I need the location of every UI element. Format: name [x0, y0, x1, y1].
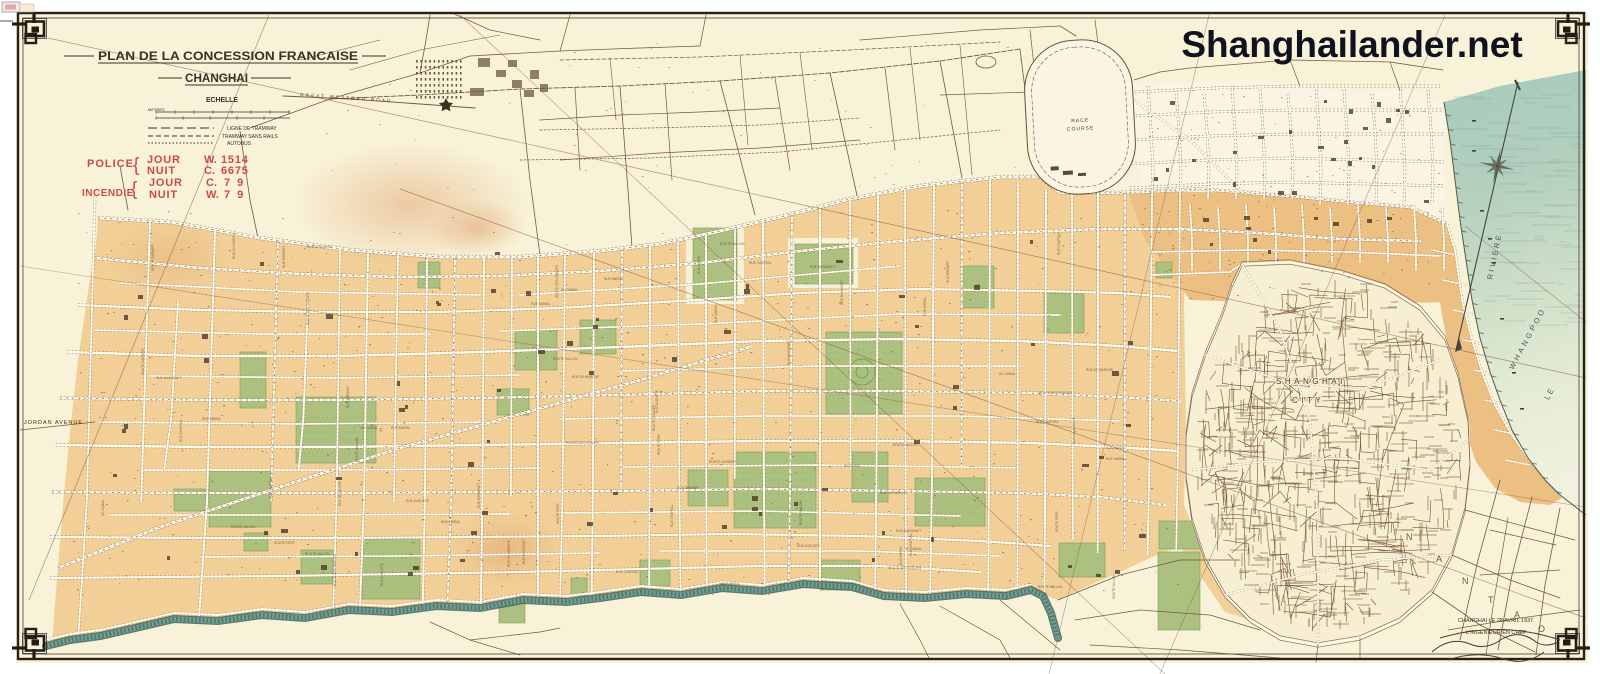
svg-text:RUE MASSENET: RUE MASSENET [477, 483, 481, 508]
svg-text:W.: W. [206, 189, 219, 201]
svg-text:RUE MASSENET: RUE MASSENET [840, 280, 844, 305]
svg-text:RUE CHAPSAL: RUE CHAPSAL [1057, 232, 1061, 255]
svg-text:ROUTE DES SOEURS: ROUTE DES SOEURS [306, 292, 310, 325]
svg-text:RUE DU MARCHE: RUE DU MARCHE [1086, 368, 1113, 372]
svg-text:ROUTE DES SOEURS: ROUTE DES SOEURS [888, 566, 921, 570]
svg-text:RUE AMIRAL: RUE AMIRAL [1106, 457, 1126, 461]
svg-text:7 9: 7 9 [224, 189, 245, 201]
svg-text:C.: C. [204, 165, 215, 177]
svg-text:RUE AMIRAL: RUE AMIRAL [923, 296, 927, 316]
svg-text:ROUTE DES SOEURS: ROUTE DES SOEURS [555, 265, 559, 298]
svg-text:RUE BRENIER: RUE BRENIER [346, 386, 350, 408]
svg-text:RUE AMIRAL: RUE AMIRAL [721, 582, 741, 586]
svg-text:AV. DUBAIL: AV. DUBAIL [844, 464, 861, 468]
svg-text:RUE CHAPSAL: RUE CHAPSAL [670, 504, 674, 527]
svg-text:ROUTE VALLON: ROUTE VALLON [305, 552, 330, 556]
svg-text:ROUTE VALLON: ROUTE VALLON [1038, 585, 1063, 589]
svg-text:ROUTE DES SOEURS: ROUTE DES SOEURS [566, 441, 599, 445]
svg-text:ROUTE VALLON: ROUTE VALLON [553, 357, 578, 361]
svg-text:{: { [133, 155, 140, 176]
svg-text:RUE AUGUSTE: RUE AUGUSTE [797, 544, 820, 548]
svg-text:C.: C. [206, 177, 217, 189]
svg-text:RUE AMIRAL: RUE AMIRAL [899, 545, 903, 565]
svg-text:RUE BRENIER: RUE BRENIER [282, 246, 286, 268]
svg-text:RUE MASSENET: RUE MASSENET [522, 539, 526, 564]
svg-text:RUE MASSENET: RUE MASSENET [787, 340, 791, 365]
svg-text:{: { [131, 179, 138, 200]
svg-text:TRAMWAY SANS RAILS: TRAMWAY SANS RAILS [222, 134, 278, 140]
svg-text:RUE DU MARCHE: RUE DU MARCHE [1072, 417, 1076, 444]
svg-text:RUE DU MARCHE: RUE DU MARCHE [572, 375, 599, 379]
svg-text:7 9: 7 9 [224, 177, 245, 189]
svg-text:CHANGHAI: CHANGHAI [185, 71, 248, 85]
svg-text:RUE CHAPSAL: RUE CHAPSAL [749, 261, 772, 265]
svg-text:SHANGHAI: SHANGHAI [1276, 377, 1346, 386]
svg-text:ROUTE VALLON: ROUTE VALLON [307, 245, 332, 249]
svg-text:ROUTE GARNIER: ROUTE GARNIER [709, 460, 736, 464]
svg-text:RUE DU MARCHE: RUE DU MARCHE [507, 540, 511, 567]
svg-text:RUE AMIRAL: RUE AMIRAL [531, 302, 551, 306]
svg-text:AV. DUBAIL: AV. DUBAIL [905, 547, 922, 551]
svg-text:AUTOBUS: AUTOBUS [227, 141, 252, 147]
svg-text:RUE AMIRAL: RUE AMIRAL [604, 277, 624, 281]
svg-text:O: O [1538, 624, 1545, 634]
svg-text:RUE CHAPSAL: RUE CHAPSAL [1036, 420, 1059, 424]
svg-text:AV. DUBAIL: AV. DUBAIL [361, 426, 378, 430]
svg-text:NUIT: NUIT [147, 165, 176, 177]
svg-text:ROUTE PERE: ROUTE PERE [556, 503, 560, 524]
svg-text:CHANGHAI LE 28 AVRIL 1937.: CHANGHAI LE 28 AVRIL 1937. [1458, 618, 1535, 624]
svg-text:RUE MASSENET: RUE MASSENET [156, 376, 181, 380]
svg-text:CITY: CITY [1292, 396, 1324, 405]
svg-text:ROUTE VALLON: ROUTE VALLON [893, 443, 918, 447]
svg-text:ROUTE DES SOEURS: ROUTE DES SOEURS [333, 554, 337, 587]
svg-text:JORDAN AVENUE: JORDAN AVENUE [24, 420, 83, 426]
svg-text:POLICE: POLICE [87, 158, 134, 170]
svg-text:N: N [1406, 532, 1413, 542]
svg-text:ROUTE PERE: ROUTE PERE [274, 541, 295, 545]
svg-text:RUE AMIRAL: RUE AMIRAL [714, 303, 718, 323]
svg-text:PLAN DE LA CONCESSION FRANCAIS: PLAN DE LA CONCESSION FRANCAISE [98, 49, 358, 63]
svg-text:ROUTE PERE: ROUTE PERE [1055, 511, 1059, 532]
svg-text:N: N [1462, 576, 1469, 586]
svg-text:INCENDIE: INCENDIE [82, 188, 134, 199]
svg-text:RUE AUGUSTE: RUE AUGUSTE [406, 499, 429, 503]
svg-text:RUE AMIRAL: RUE AMIRAL [391, 426, 411, 430]
svg-text:6675: 6675 [221, 165, 249, 177]
svg-text:ROUTE VALLON: ROUTE VALLON [799, 500, 803, 525]
svg-text:LIGNE DE TRAMWAY: LIGNE DE TRAMWAY [227, 126, 277, 132]
svg-text:RUE DU MARCHE: RUE DU MARCHE [880, 491, 907, 495]
svg-text:RUE DU MARCHE: RUE DU MARCHE [232, 232, 236, 259]
svg-text:AV. DUBAIL: AV. DUBAIL [999, 372, 1016, 376]
svg-text:RUE AMIRAL: RUE AMIRAL [1106, 446, 1126, 450]
svg-text:RUE CHAPSAL: RUE CHAPSAL [909, 533, 913, 556]
svg-text:RACE: RACE [1071, 118, 1089, 125]
svg-text:A: A [1436, 554, 1442, 564]
svg-text:NUIT: NUIT [149, 189, 178, 201]
svg-text:ECHELLE: ECHELLE [206, 97, 238, 104]
svg-text:RUE AUGUSTE: RUE AUGUSTE [655, 390, 659, 413]
svg-text:Shanghailander.net: Shanghailander.net [1181, 24, 1522, 65]
svg-text:RUE BRENIER: RUE BRENIER [946, 261, 950, 283]
svg-text:ROUTE PERE: ROUTE PERE [657, 434, 661, 455]
svg-text:RUE MASSENET: RUE MASSENET [896, 529, 921, 533]
svg-text:ROUTE DES SOEURS: ROUTE DES SOEURS [1039, 391, 1072, 395]
svg-text:RUE CHAPSAL: RUE CHAPSAL [269, 476, 273, 499]
svg-text:RUE AMIRAL: RUE AMIRAL [202, 417, 222, 421]
svg-text:JOUR: JOUR [149, 177, 183, 189]
svg-text:ROUTE VALLON: ROUTE VALLON [355, 437, 359, 462]
svg-text:ROUTE VALLON: ROUTE VALLON [231, 525, 256, 529]
svg-text:METRES: METRES [148, 107, 165, 112]
svg-text:RUE CHAPSAL: RUE CHAPSAL [616, 570, 639, 574]
svg-text:ROUTE VALLON: ROUTE VALLON [1112, 574, 1116, 599]
svg-text:RUE AMIRAL: RUE AMIRAL [697, 254, 701, 274]
svg-text:RUE AMIRAL: RUE AMIRAL [441, 520, 461, 524]
svg-text:ROUTE GARNIER: ROUTE GARNIER [141, 348, 145, 375]
svg-text:AV. DUBAIL: AV. DUBAIL [101, 499, 105, 516]
svg-text:T: T [1488, 595, 1494, 605]
svg-text:ROUTE VALLON: ROUTE VALLON [338, 481, 342, 506]
svg-text:RUE AUGUSTE: RUE AUGUSTE [380, 563, 384, 586]
svg-text:AV. DUBAIL: AV. DUBAIL [561, 288, 578, 292]
svg-text:ROUTE GARNIER: ROUTE GARNIER [151, 244, 155, 271]
svg-text:RUE CHAPSAL: RUE CHAPSAL [179, 419, 183, 442]
svg-text:ROUTE VALLON: ROUTE VALLON [720, 242, 745, 246]
svg-text:RUE BRENIER: RUE BRENIER [677, 486, 699, 490]
svg-text:RUE MASSENET: RUE MASSENET [810, 265, 835, 269]
